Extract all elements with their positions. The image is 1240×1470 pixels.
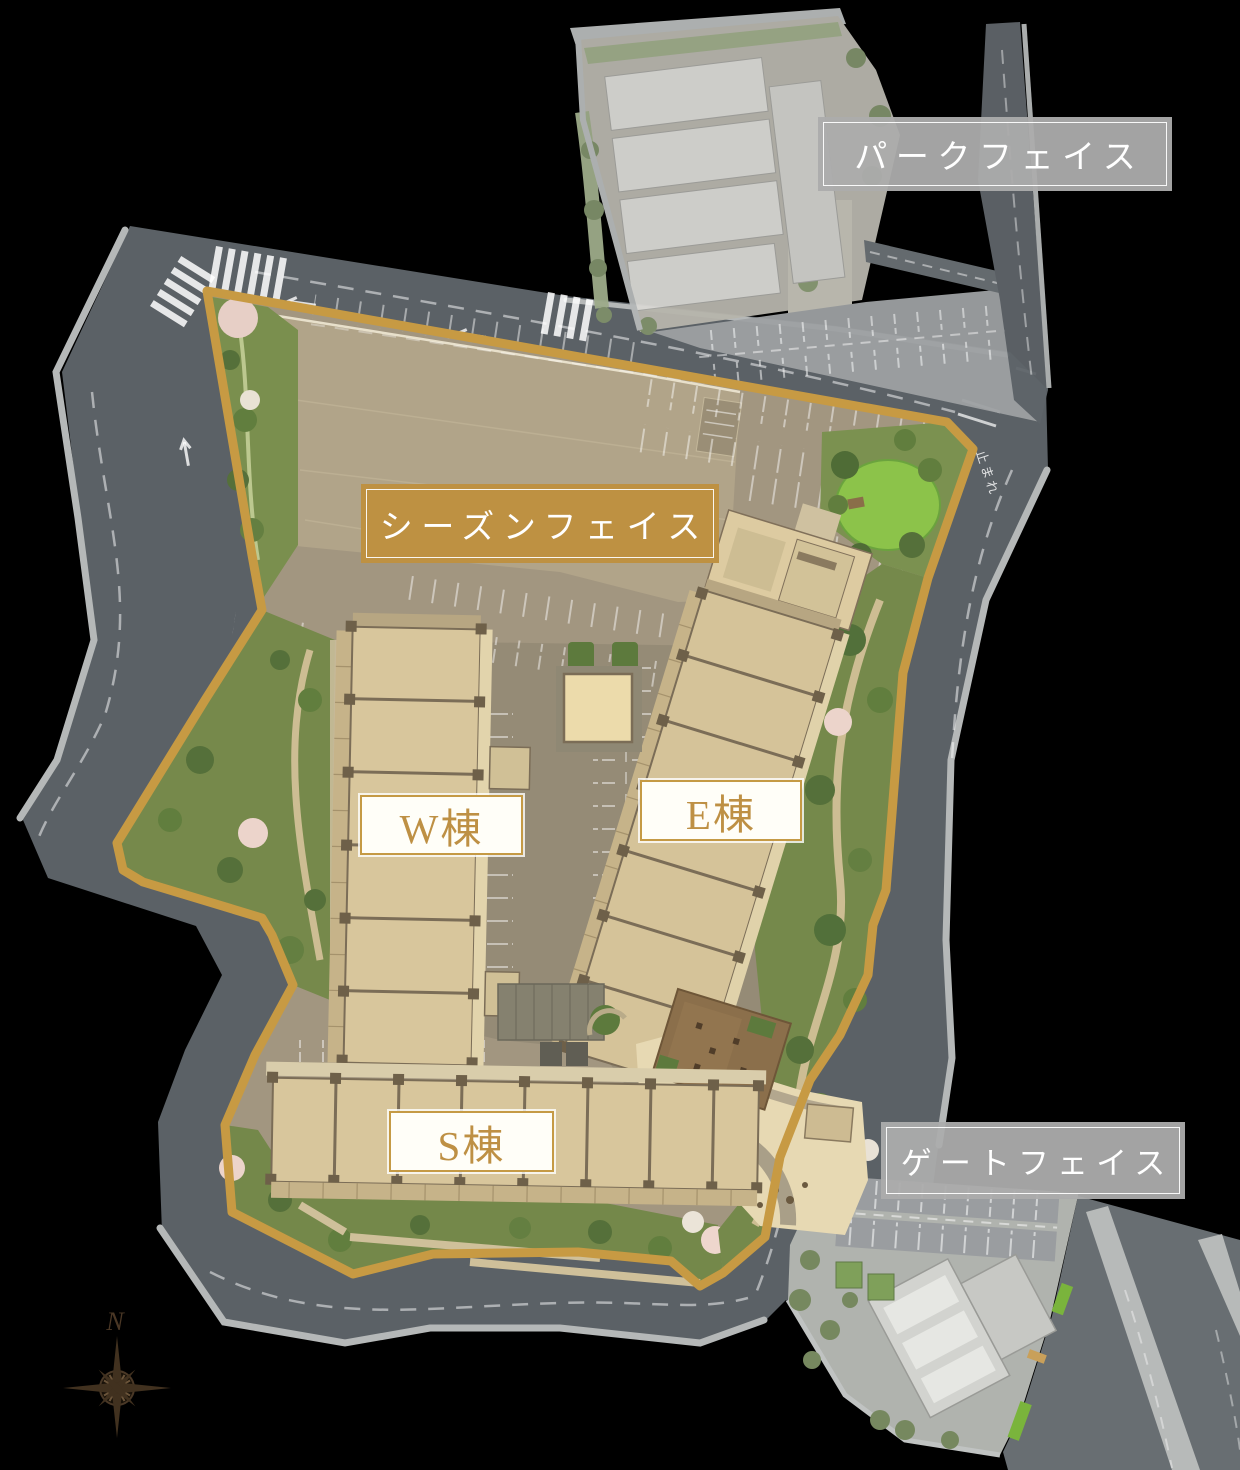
compass-rose: N xyxy=(63,1307,171,1438)
gate-face-site xyxy=(788,1176,1240,1470)
s-building-label: S棟 xyxy=(389,1111,554,1172)
park-face-label: パークフェイス xyxy=(818,117,1172,191)
compass-points xyxy=(63,1336,171,1438)
site-plan-illustration: 止まれ xyxy=(0,0,1240,1470)
site-plan-map: 止まれ xyxy=(0,0,1240,1470)
central-building-shape xyxy=(556,666,642,752)
e-building-label: E棟 xyxy=(640,780,802,841)
gate-face-label: ゲートフェイス xyxy=(881,1122,1185,1199)
north-label: N xyxy=(105,1307,125,1336)
season-face-label: シーズンフェイス xyxy=(361,484,719,563)
w-building-label: W棟 xyxy=(360,795,523,855)
